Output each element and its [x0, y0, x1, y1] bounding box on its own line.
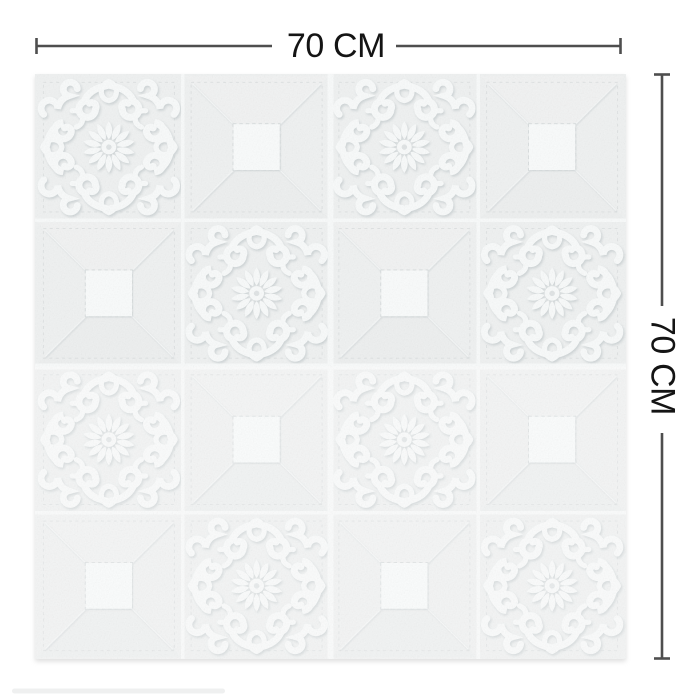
svg-text:70 CM: 70 CM — [287, 27, 385, 65]
svg-text:70 CM: 70 CM — [644, 317, 682, 415]
